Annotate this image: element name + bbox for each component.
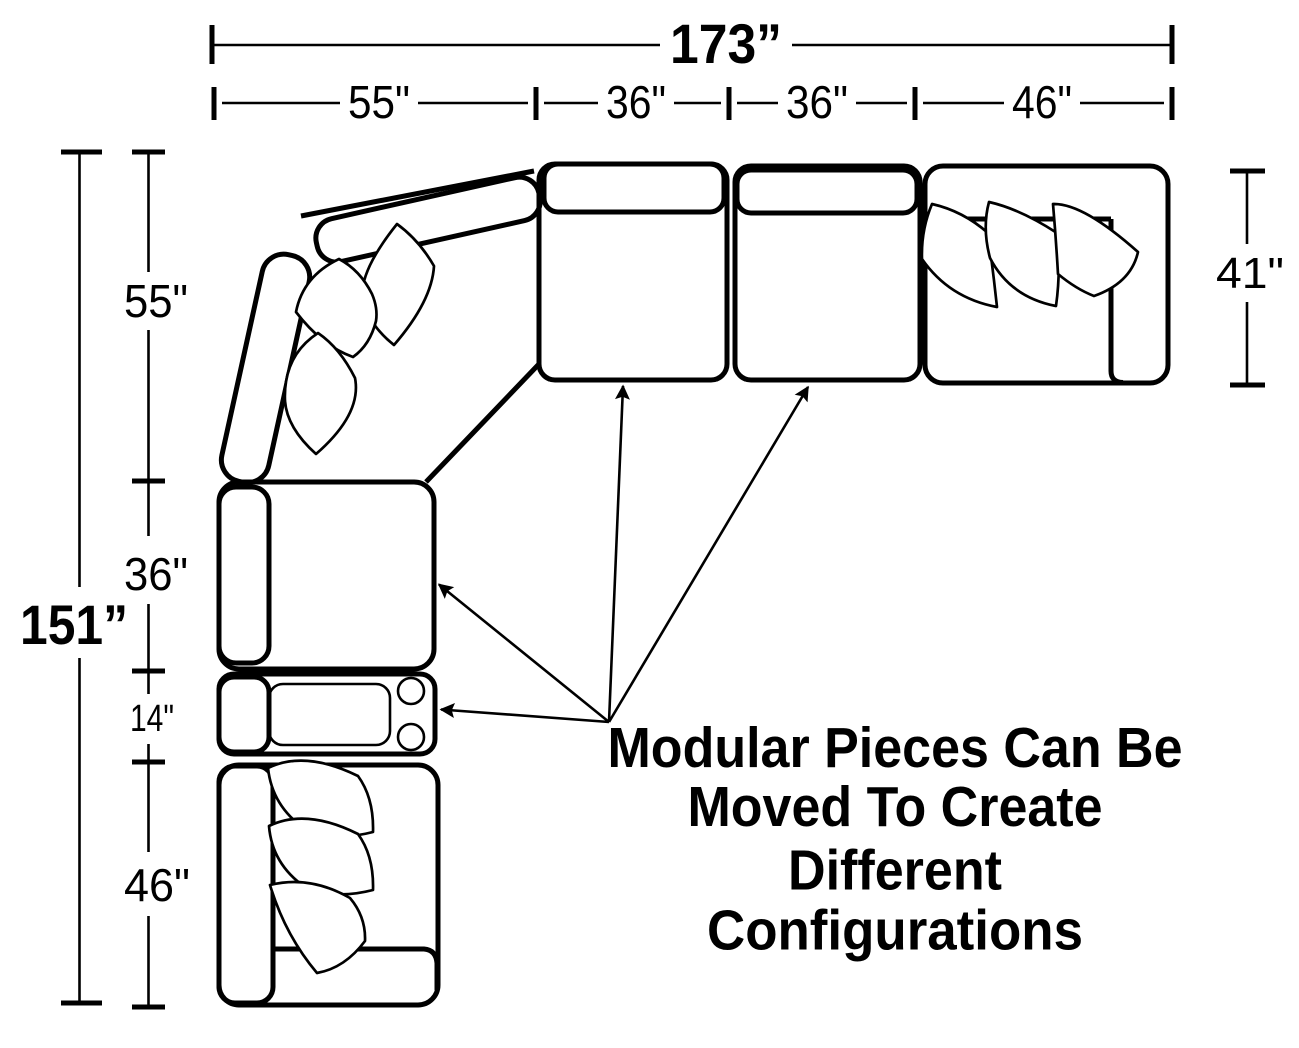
- svg-text:36": 36": [124, 548, 188, 600]
- svg-text:Modular Pieces Can Be: Modular Pieces Can Be: [608, 716, 1183, 780]
- svg-text:14": 14": [130, 698, 174, 740]
- svg-text:46": 46": [124, 859, 190, 911]
- svg-text:Different: Different: [788, 839, 1002, 903]
- svg-text:55": 55": [124, 275, 188, 327]
- svg-text:151”: 151”: [20, 593, 128, 656]
- svg-text:46": 46": [1012, 76, 1072, 128]
- svg-text:36": 36": [606, 76, 666, 128]
- svg-text:41": 41": [1216, 249, 1284, 298]
- svg-text:Configurations: Configurations: [707, 899, 1083, 963]
- svg-text:Moved To Create: Moved To Create: [688, 775, 1103, 839]
- svg-text:36": 36": [786, 76, 848, 128]
- svg-text:173”: 173”: [670, 12, 782, 75]
- svg-text:55": 55": [348, 76, 410, 128]
